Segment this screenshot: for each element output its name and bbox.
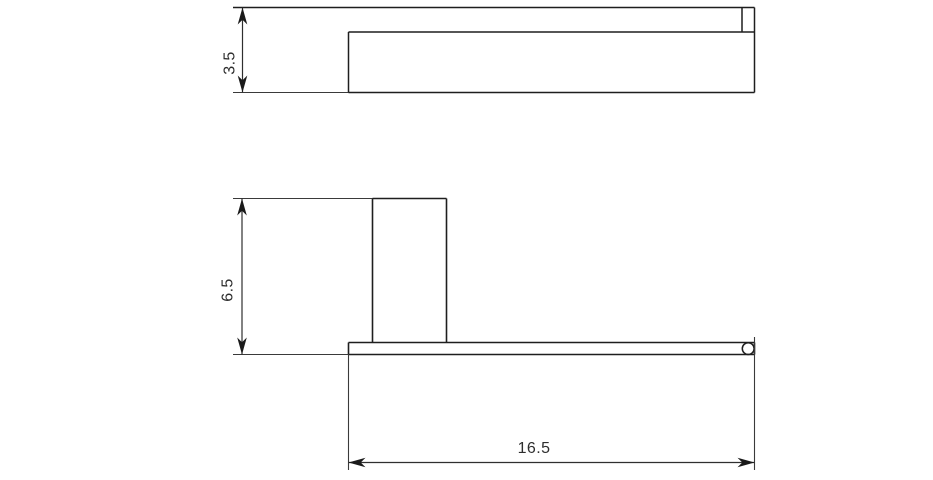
svg-text:16.5: 16.5 [518,440,551,457]
svg-text:3.5: 3.5 [222,51,239,74]
svg-text:6.5: 6.5 [220,278,237,301]
